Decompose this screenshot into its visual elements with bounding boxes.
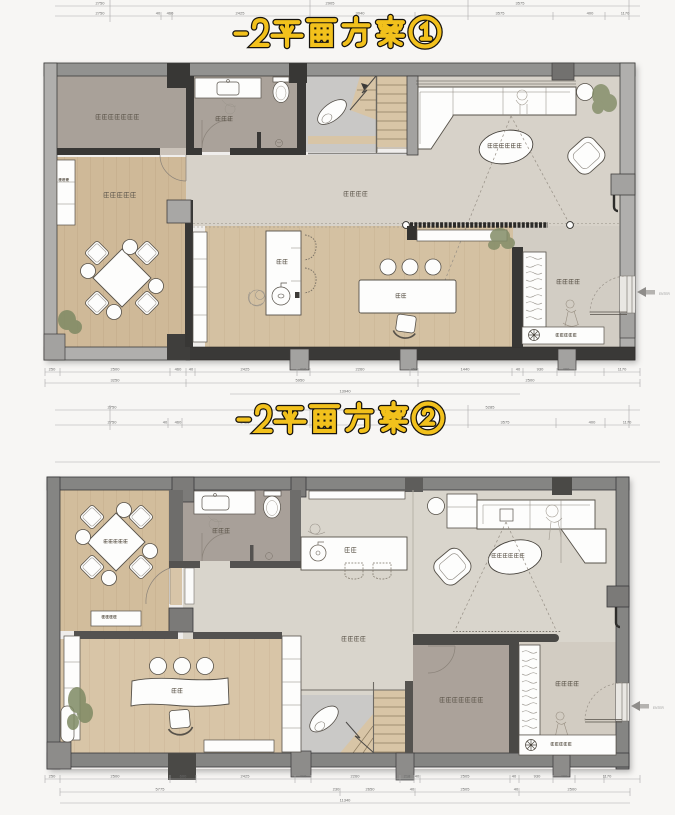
svg-text:2425: 2425 bbox=[241, 366, 251, 371]
svg-text:410: 410 bbox=[300, 773, 307, 778]
svg-text:2260: 2260 bbox=[356, 366, 366, 371]
svg-text:2425: 2425 bbox=[236, 11, 246, 16]
svg-text:1170: 1170 bbox=[603, 773, 612, 778]
svg-text:2905: 2905 bbox=[326, 1, 336, 6]
svg-text:ENTER: ENTER bbox=[659, 292, 671, 296]
svg-text:250: 250 bbox=[49, 773, 56, 778]
svg-text:250: 250 bbox=[49, 366, 56, 371]
svg-text:13940: 13940 bbox=[339, 388, 351, 393]
svg-text:3250: 3250 bbox=[111, 377, 121, 382]
svg-text:460: 460 bbox=[167, 11, 174, 16]
svg-text:400: 400 bbox=[561, 773, 568, 778]
svg-text:410: 410 bbox=[300, 366, 307, 371]
svg-text:2505: 2505 bbox=[461, 773, 471, 778]
svg-text:2650: 2650 bbox=[366, 786, 376, 791]
svg-text:40: 40 bbox=[415, 773, 420, 778]
svg-text:218: 218 bbox=[404, 773, 411, 778]
svg-text:2750: 2750 bbox=[96, 1, 106, 6]
svg-text:3040: 3040 bbox=[356, 11, 366, 16]
svg-text:40: 40 bbox=[514, 786, 519, 791]
svg-text:ENTER: ENTER bbox=[653, 706, 665, 710]
svg-text:2260: 2260 bbox=[351, 773, 361, 778]
svg-text:5775: 5775 bbox=[156, 786, 166, 791]
svg-text:3575: 3575 bbox=[496, 11, 506, 16]
svg-text:400: 400 bbox=[563, 366, 570, 371]
svg-text:2750: 2750 bbox=[96, 11, 106, 16]
svg-text:40: 40 bbox=[156, 11, 161, 16]
svg-text:230: 230 bbox=[333, 786, 340, 791]
svg-text:40: 40 bbox=[410, 786, 415, 791]
svg-text:3575: 3575 bbox=[516, 1, 526, 6]
svg-text:1170: 1170 bbox=[623, 420, 632, 425]
svg-text:930: 930 bbox=[537, 366, 544, 371]
svg-text:5950: 5950 bbox=[296, 377, 306, 382]
svg-text:460: 460 bbox=[175, 366, 182, 371]
svg-text:2750: 2750 bbox=[108, 405, 118, 410]
svg-text:3575: 3575 bbox=[501, 420, 511, 425]
svg-text:40: 40 bbox=[163, 420, 168, 425]
svg-text:2500: 2500 bbox=[526, 377, 536, 382]
svg-text:1170: 1170 bbox=[618, 366, 627, 371]
svg-text:2425: 2425 bbox=[241, 773, 251, 778]
svg-text:1170: 1170 bbox=[621, 11, 630, 16]
svg-text:5285: 5285 bbox=[486, 405, 496, 410]
svg-text:400: 400 bbox=[587, 11, 594, 16]
svg-text:1440: 1440 bbox=[461, 366, 471, 371]
svg-text:40: 40 bbox=[512, 773, 517, 778]
svg-text:460: 460 bbox=[175, 420, 182, 425]
svg-text:2500: 2500 bbox=[111, 366, 121, 371]
svg-text:400: 400 bbox=[589, 420, 596, 425]
svg-text:40: 40 bbox=[189, 366, 194, 371]
svg-text:2500: 2500 bbox=[111, 773, 121, 778]
svg-text:11340: 11340 bbox=[340, 797, 352, 802]
svg-text:2750: 2750 bbox=[108, 420, 118, 425]
svg-text:2500: 2500 bbox=[568, 786, 578, 791]
svg-text:458: 458 bbox=[411, 366, 418, 371]
svg-text:2505: 2505 bbox=[461, 786, 471, 791]
svg-text:40: 40 bbox=[516, 366, 521, 371]
svg-text:930: 930 bbox=[534, 773, 541, 778]
svg-text:600: 600 bbox=[180, 773, 187, 778]
